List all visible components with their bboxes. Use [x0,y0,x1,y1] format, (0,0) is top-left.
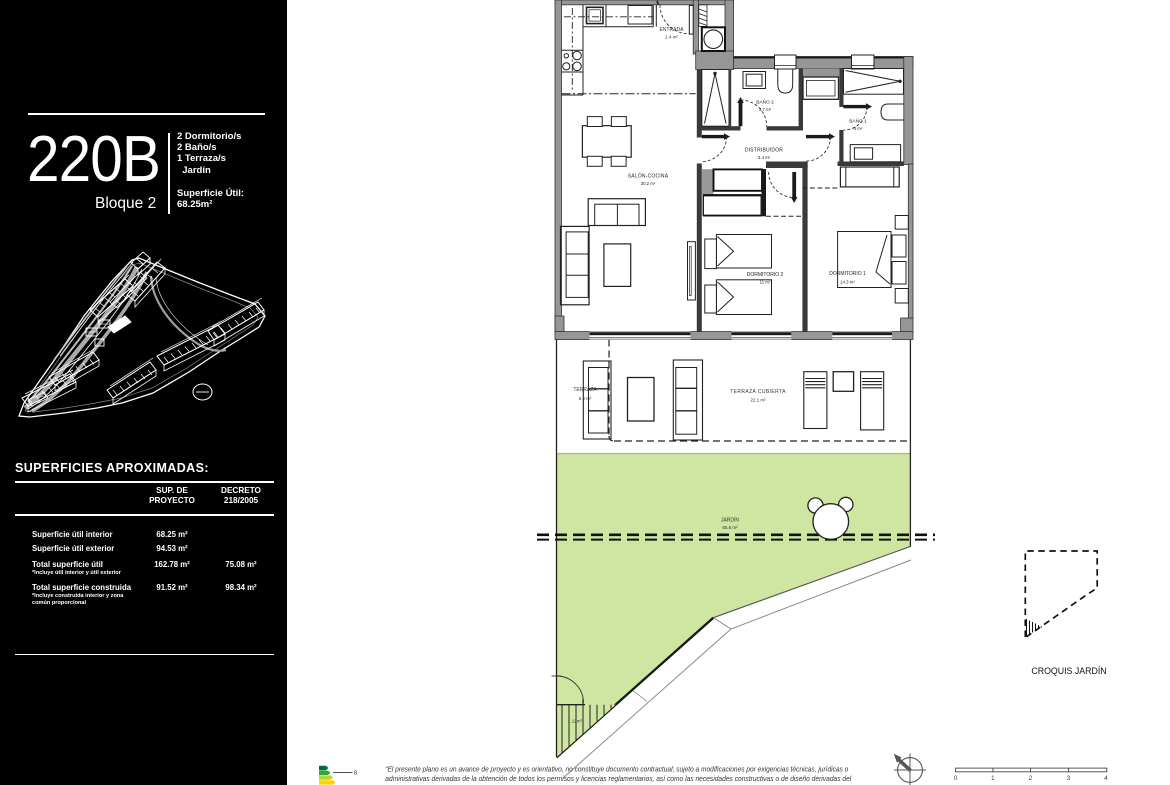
svg-text:1.4 m²: 1.4 m² [665,35,678,40]
svg-text:3: 3 [1067,775,1071,782]
svg-text:SALÓN-COCINA: SALÓN-COCINA [628,173,669,180]
svg-text:TERRAZA: TERRAZA [573,387,597,393]
svg-text:22.1 m²: 22.1 m² [750,398,766,403]
svg-text:BAÑO 2: BAÑO 2 [756,99,774,106]
svg-text:8.3 m²: 8.3 m² [579,396,592,401]
svg-text:BAÑO 1: BAÑO 1 [849,118,867,125]
svg-text:3.4 m²: 3.4 m² [758,155,771,160]
svg-text:DORMITORIO 1: DORMITORIO 1 [829,271,866,277]
svg-text:B: B [354,771,358,777]
svg-text:11 m²: 11 m² [760,280,771,285]
svg-text:4: 4 [1104,775,1108,782]
svg-text:DISTRIBUIDOR: DISTRIBUIDOR [745,148,783,154]
svg-text:14.3 m²: 14.3 m² [840,280,855,285]
svg-text:2: 2 [1029,775,1033,782]
svg-text:1: 1 [991,775,995,782]
svg-text:65.6 m²: 65.6 m² [722,525,738,530]
svg-text:ENTRADA: ENTRADA [660,27,685,33]
svg-text:1.12m²: 1.12m² [568,719,583,724]
svg-text:administrativas derivadas de l: administrativas derivadas de la obtenció… [385,774,851,783]
svg-text:CROQUIS JARDÍN: CROQUIS JARDÍN [1031,666,1106,676]
svg-text:“El presente plano es un avanc: “El presente plano es un avance de proye… [385,764,848,773]
svg-text:JARDÍN: JARDÍN [721,517,739,524]
svg-text:TERRAZA CUBIERTA: TERRAZA CUBIERTA [730,389,786,395]
svg-text:DORMITORIO 2: DORMITORIO 2 [747,272,784,278]
svg-text:4 m²: 4 m² [854,126,863,131]
svg-text:30.2 m²: 30.2 m² [641,181,656,186]
svg-text:0: 0 [954,775,958,782]
